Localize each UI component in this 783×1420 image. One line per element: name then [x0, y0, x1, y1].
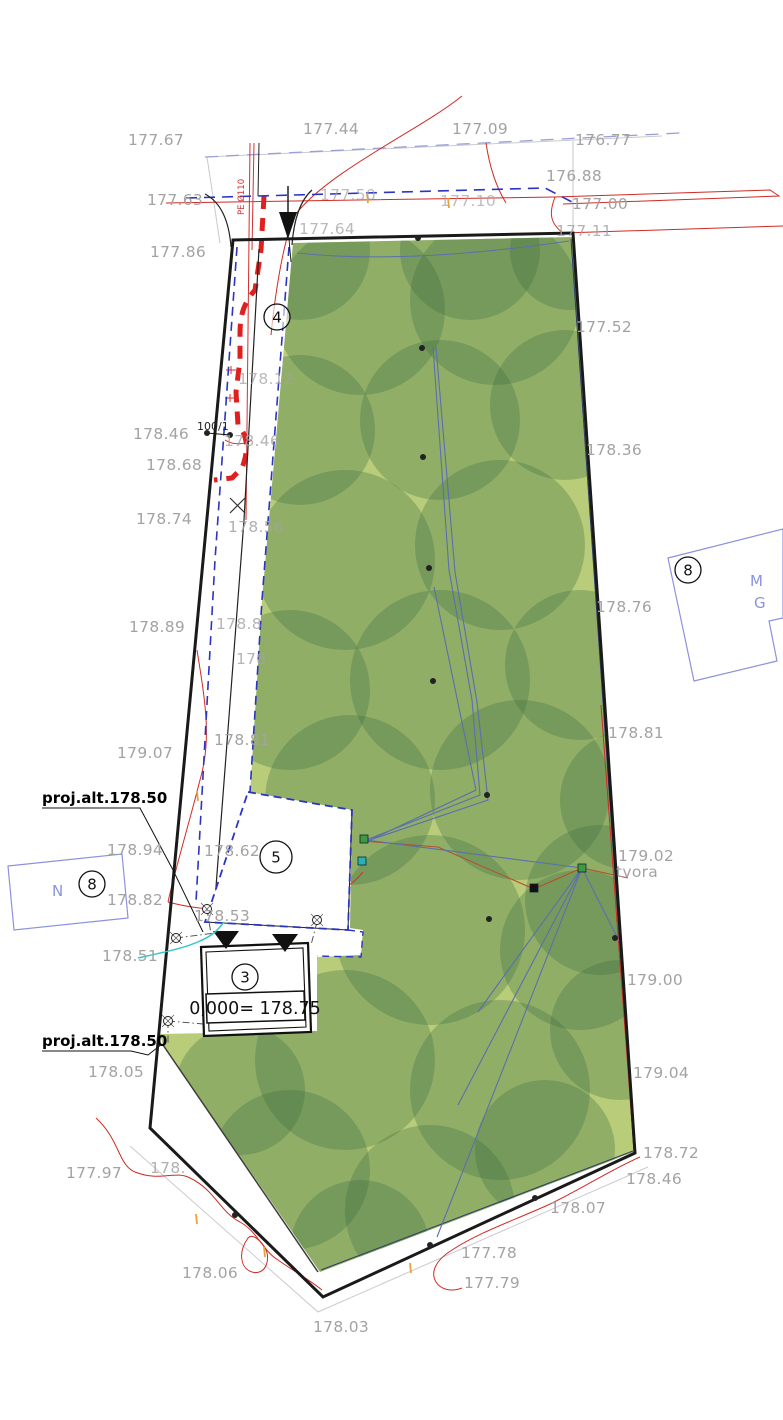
- elevation-label: 178.12: [238, 370, 294, 388]
- survey-point: [232, 1212, 238, 1218]
- elevation-label: 179.00: [627, 971, 683, 989]
- survey-point: [427, 1242, 433, 1248]
- building-5-step-dashed: [317, 930, 363, 957]
- elevation-label: 177.63: [147, 191, 203, 209]
- circled-number-8: 8: [675, 557, 701, 583]
- elevation-label: 178.05: [88, 1063, 144, 1081]
- survey-point: [420, 454, 426, 460]
- number-text: 8: [87, 876, 97, 894]
- elevation-label: 178.81: [608, 724, 664, 742]
- proj-alt-annotation-lower: proj.alt.178.50: [42, 1032, 167, 1050]
- elevation-label: 178.51: [102, 947, 158, 965]
- neighbor-right-letter-m: M: [750, 572, 763, 590]
- elevation-label: 178.56: [228, 518, 284, 536]
- number-text: 5: [271, 849, 281, 867]
- survey-point: [484, 792, 490, 798]
- elevation-label: 178.76: [596, 598, 652, 616]
- level-value-text: 0,000= 178.75: [189, 999, 321, 1019]
- elevation-label: 178.74: [136, 510, 192, 528]
- elevation-label: 178.03: [313, 1318, 369, 1336]
- utility-pole: [360, 835, 368, 843]
- elevation-label: 178.82: [107, 891, 163, 909]
- elevation-label: 178.46: [133, 425, 189, 443]
- elevation-label: 177.11: [556, 222, 612, 240]
- elevation-label: 178.62: [204, 842, 260, 860]
- road-edge-top: [258, 143, 259, 196]
- elevation-label: 177.86: [150, 243, 206, 261]
- elevation-label: 177.97: [66, 1164, 122, 1182]
- orange-tick: [197, 791, 198, 801]
- elevation-label: 178.07: [550, 1199, 606, 1217]
- elevation-label: 179.07: [117, 744, 173, 762]
- survey-point: [419, 345, 425, 351]
- elevation-label: 177.78: [461, 1244, 517, 1262]
- elevation-label: 178.53: [194, 907, 250, 925]
- number-text: 4: [272, 309, 282, 327]
- pipe-diameter-label: PE Ø110: [236, 179, 247, 215]
- neighbor-parcel-right: M G: [668, 529, 783, 681]
- utility-pole: [530, 884, 538, 892]
- elevation-label: 178.8: [216, 615, 262, 633]
- elevation-label: 178.06: [182, 1264, 238, 1282]
- orange-tick: [196, 1214, 197, 1224]
- fence-label: tvora: [616, 863, 658, 881]
- elevation-label: 178.46: [224, 432, 280, 450]
- elevation-label: 178.89: [129, 618, 185, 636]
- number-text: 3: [240, 969, 250, 987]
- circled-number-4: 4: [264, 304, 290, 330]
- number-text: 8: [683, 562, 693, 580]
- elevation-label: 178.81: [214, 731, 270, 749]
- survey-point: [415, 235, 421, 241]
- survey-point: [426, 565, 432, 571]
- neighbor-left-letter: N: [52, 882, 63, 900]
- elevation-label: 178.72: [643, 1144, 699, 1162]
- monument-symbol: [170, 932, 182, 944]
- elevation-label: 178: [236, 650, 267, 668]
- site-plan-canvas: N M G 177.67177.44177.09176.77176.88177.…: [0, 0, 783, 1420]
- elevation-label: 176.77: [575, 131, 631, 149]
- utility-pole: [358, 857, 366, 865]
- elevation-label: 178.36: [586, 441, 642, 459]
- circled-number-5: 5: [260, 841, 292, 873]
- circled-number-8: 8: [79, 871, 105, 897]
- elevation-label: 177.52: [576, 318, 632, 336]
- survey-point: [430, 678, 436, 684]
- circled-number-3: 3: [232, 964, 258, 990]
- elevation-label: 177.67: [128, 131, 184, 149]
- elevation-label: 179.04: [633, 1064, 689, 1082]
- survey-point: [612, 935, 618, 941]
- elevation-label: 177.00: [572, 195, 628, 213]
- x-mark: [230, 498, 245, 513]
- neighbor-right-letter-g: G: [754, 594, 766, 612]
- utility-pole: [578, 864, 586, 872]
- monument-symbol: [162, 1015, 174, 1027]
- elevation-label: 177.09: [452, 120, 508, 138]
- elevation-label: 176.88: [546, 167, 602, 185]
- site-plan-drawing: N M G 177.67177.44177.09176.77176.88177.…: [0, 0, 783, 1420]
- proj-alt-annotation-upper: proj.alt.178.50: [42, 789, 167, 807]
- elevation-label: 178.46: [626, 1170, 682, 1188]
- tree-canopy-circle: [290, 1180, 430, 1320]
- elevation-label: 177.79: [464, 1274, 520, 1292]
- elevation-label: 178.: [150, 1159, 186, 1177]
- elevation-label: 177.64: [299, 220, 355, 238]
- elevation-label: 178.68: [146, 456, 202, 474]
- elevation-label: 177.44: [303, 120, 359, 138]
- elevation-label: 178.94: [107, 841, 163, 859]
- orange-tick: [410, 1263, 411, 1273]
- monument-symbol: [311, 914, 323, 926]
- survey-point: [532, 1195, 538, 1201]
- parcel-number-label: 100/1: [197, 420, 229, 433]
- elevation-label: 177.10: [440, 192, 496, 210]
- elevation-label: 177.50: [320, 186, 376, 204]
- survey-point: [486, 916, 492, 922]
- orange-tick: [264, 1247, 265, 1257]
